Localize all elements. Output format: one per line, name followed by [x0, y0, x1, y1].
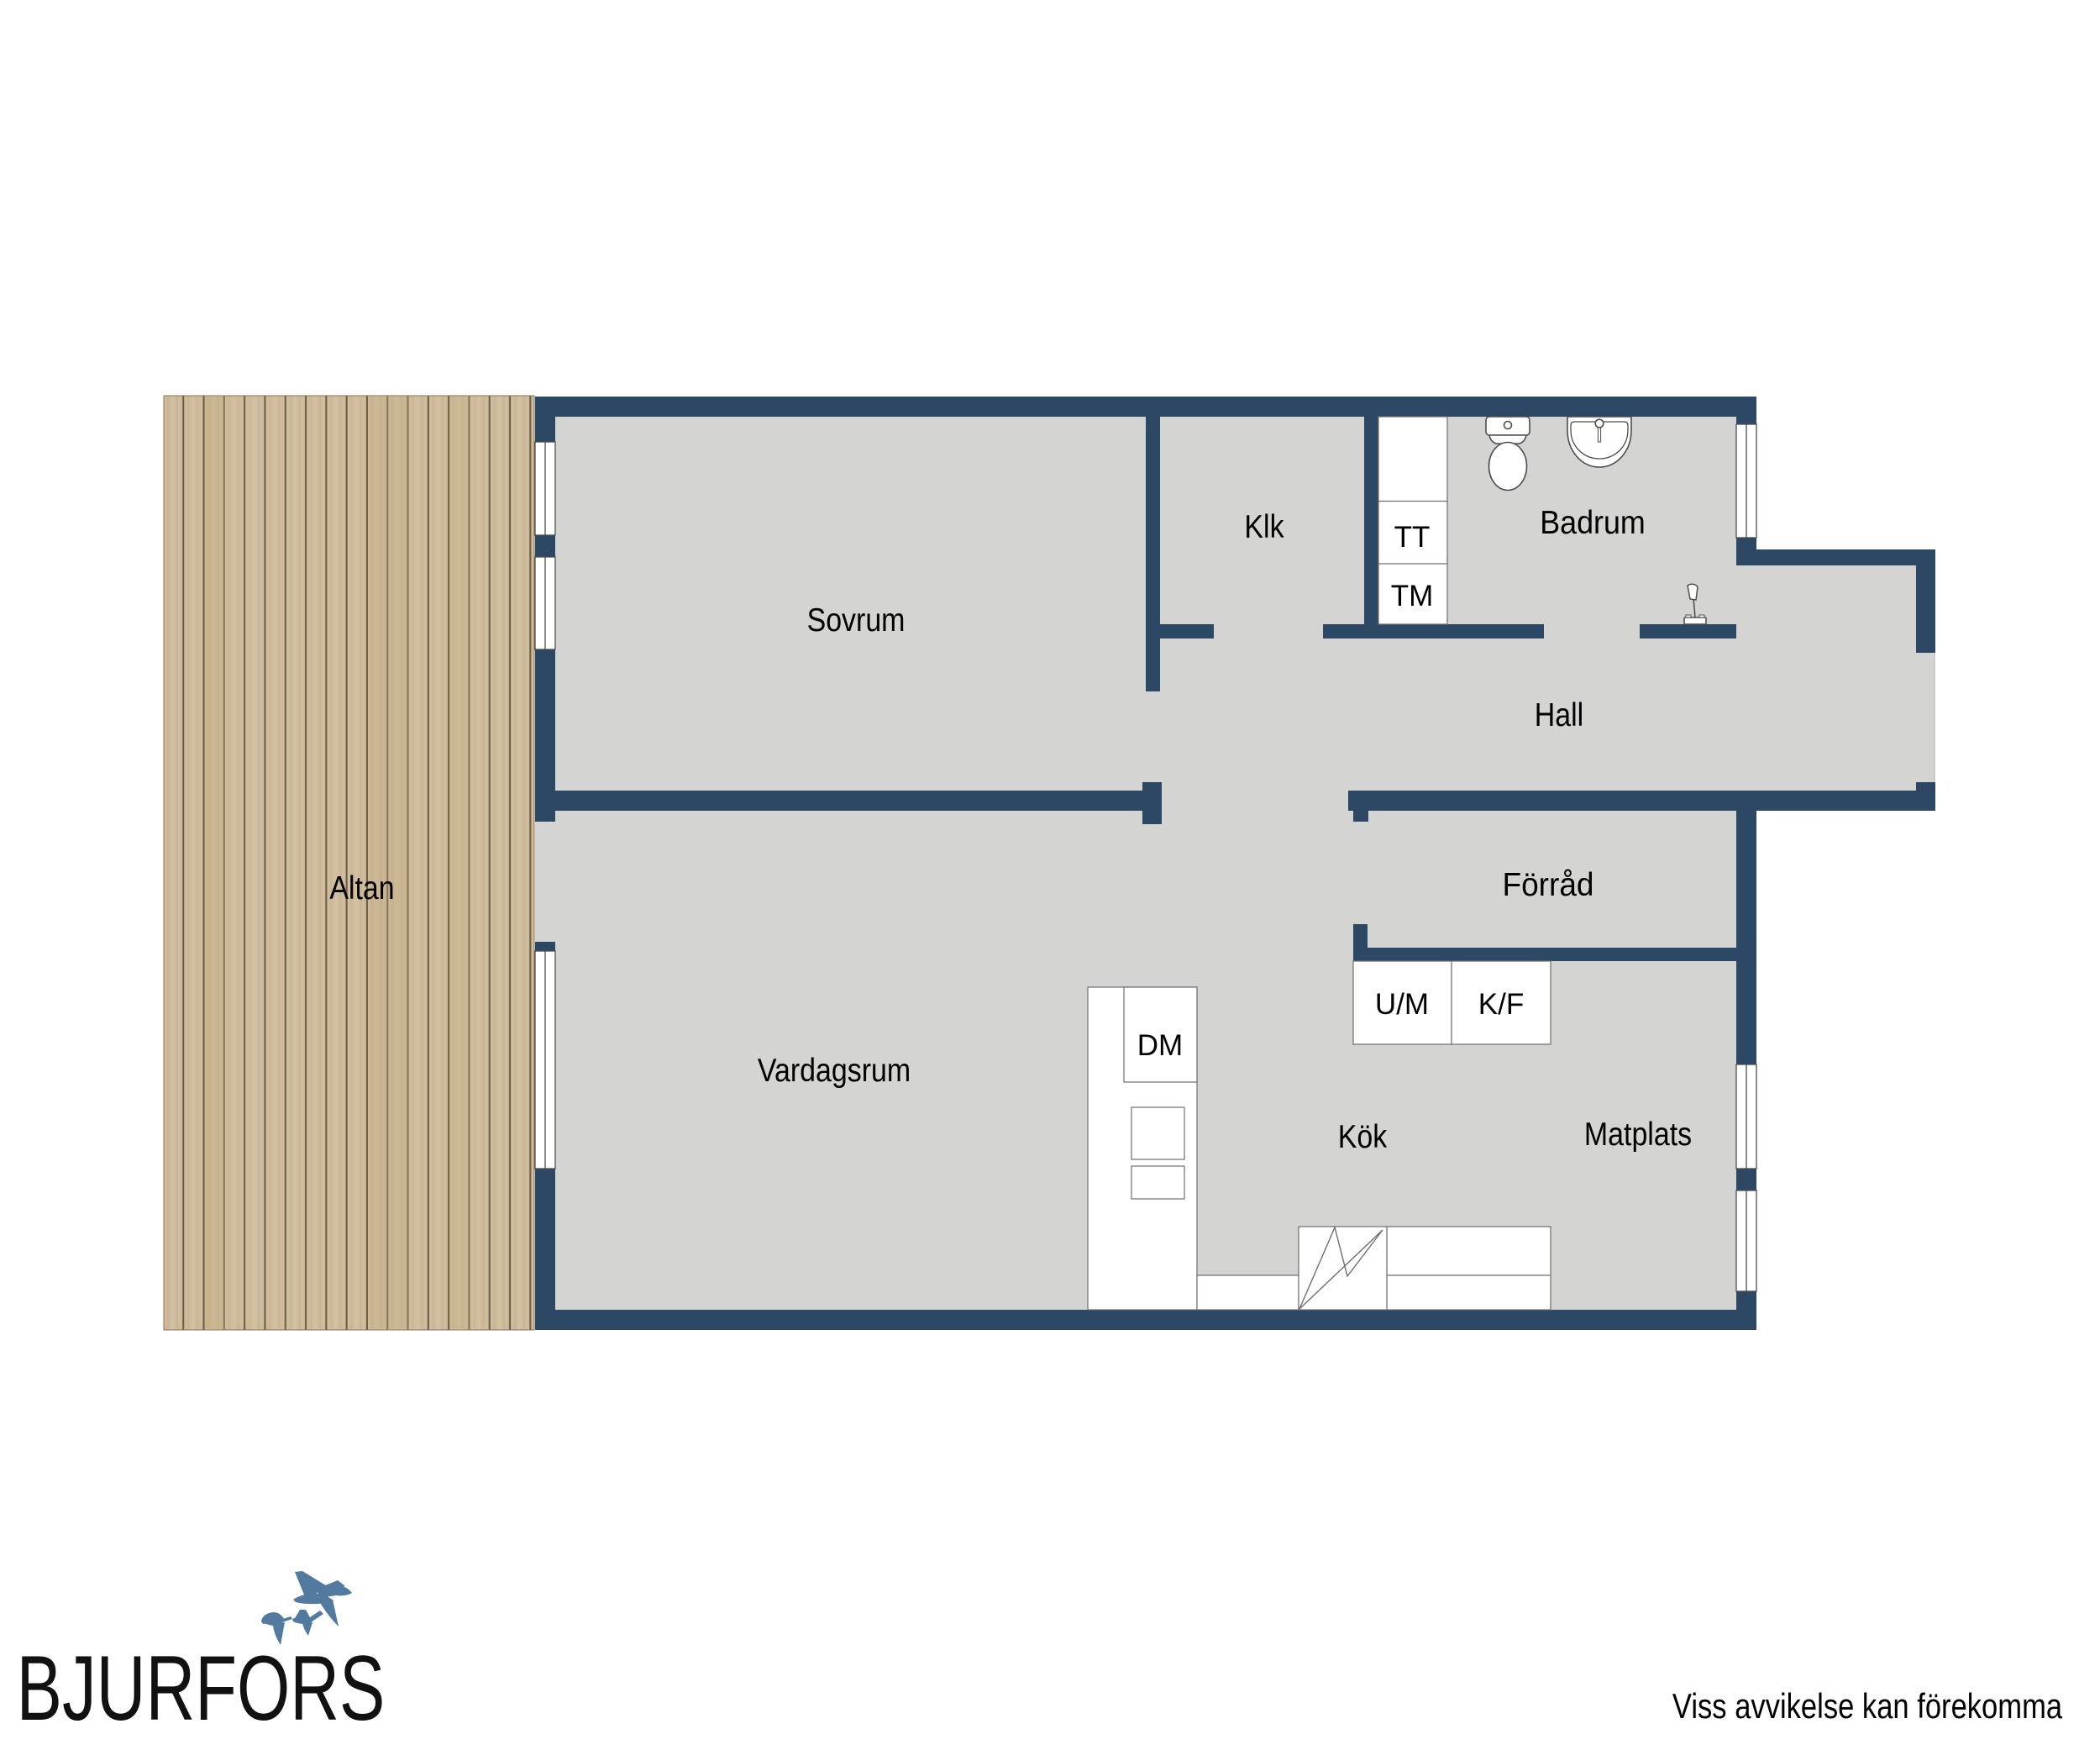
svg-text:Altan: Altan — [329, 870, 394, 907]
svg-text:Viss avvikelse kan förekomma: Viss avvikelse kan förekomma — [1672, 1687, 2063, 1726]
svg-text:Badrum: Badrum — [1540, 504, 1646, 541]
svg-text:K/F: K/F — [1478, 988, 1524, 1021]
svg-text:DM: DM — [1137, 1029, 1183, 1062]
svg-text:Vardagsrum: Vardagsrum — [758, 1052, 911, 1089]
svg-text:Förråd: Förråd — [1502, 867, 1593, 903]
svg-text:U/M: U/M — [1375, 988, 1429, 1021]
svg-text:Kök: Kök — [1338, 1118, 1388, 1155]
svg-text:Matplats: Matplats — [1584, 1116, 1692, 1153]
svg-text:Hall: Hall — [1535, 696, 1583, 733]
svg-text:TM: TM — [1391, 580, 1434, 612]
svg-text:BJURFORS: BJURFORS — [17, 1636, 386, 1740]
svg-text:TT: TT — [1394, 521, 1431, 554]
svg-text:Klk: Klk — [1244, 508, 1284, 545]
svg-text:Sovrum: Sovrum — [807, 602, 906, 639]
